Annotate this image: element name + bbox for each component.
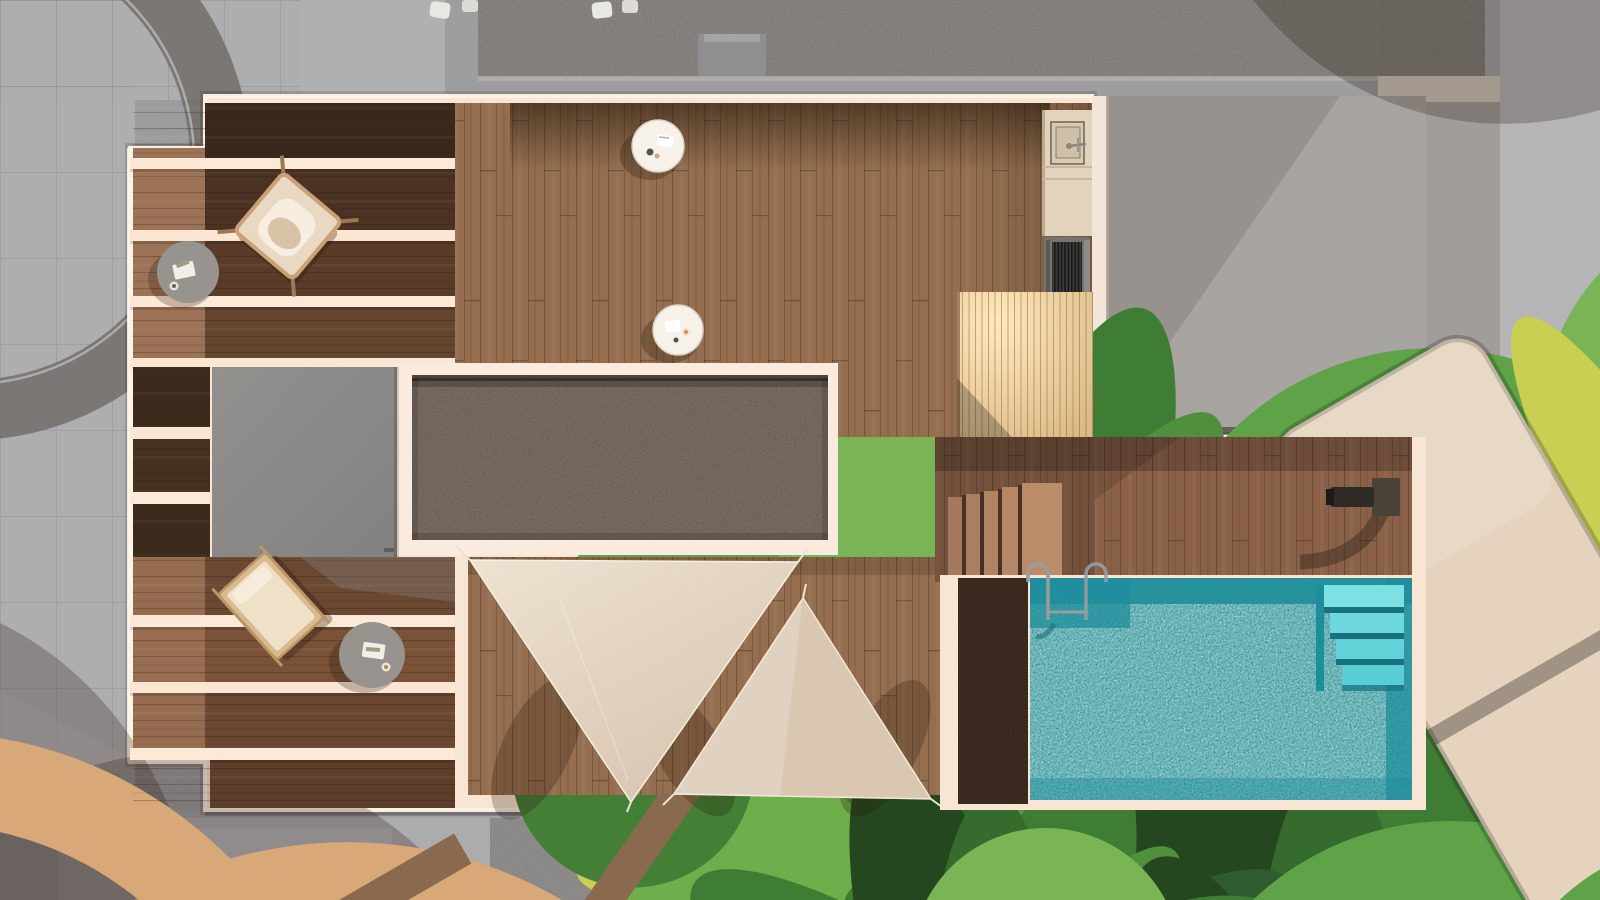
roof-access-bulkhead — [212, 367, 399, 557]
neighbor-roof-north — [300, 0, 1395, 98]
bbq-grill — [1044, 237, 1090, 298]
gravel-roof-panel — [395, 363, 838, 555]
rooftop-terrace-render — [0, 0, 1600, 900]
outdoor-kitchen — [1042, 110, 1092, 298]
slatted-platform — [957, 292, 1093, 448]
kitchen-sink — [1051, 122, 1086, 164]
